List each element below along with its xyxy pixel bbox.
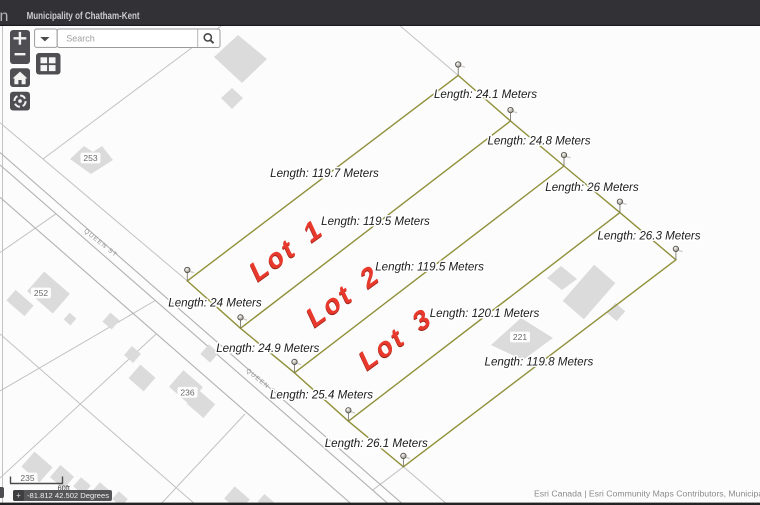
svg-text:+: + <box>16 491 21 500</box>
svg-text:Municipality of Chatham-Kent: Municipality of Chatham-Kent <box>27 10 140 22</box>
svg-text:Length: 26.3 Meters: Length: 26.3 Meters <box>597 229 700 242</box>
svg-text:Length: 120.1 Meters: Length: 120.1 Meters <box>430 307 540 320</box>
svg-text:Length: 25.4 Meters: Length: 25.4 Meters <box>270 389 373 402</box>
svg-text:221: 221 <box>513 332 527 342</box>
svg-text:236: 236 <box>180 387 194 397</box>
svg-text:Length: 24.8 Meters: Length: 24.8 Meters <box>487 135 590 148</box>
svg-text:Length: 24.9 Meters: Length: 24.9 Meters <box>216 342 319 355</box>
svg-text:Length: 119.5 Meters: Length: 119.5 Meters <box>375 261 484 274</box>
svg-text:Length: 26 Meters: Length: 26 Meters <box>545 181 639 194</box>
svg-text:253: 253 <box>83 153 97 163</box>
svg-text:Length: 24 Meters: Length: 24 Meters <box>168 297 262 310</box>
svg-text:Length: 119.7 Meters: Length: 119.7 Meters <box>270 167 379 180</box>
svg-text:Esri Canada | Esri Community M: Esri Canada | Esri Community Maps Contri… <box>534 489 760 499</box>
svg-text:Length: 24.1 Meters: Length: 24.1 Meters <box>434 88 537 101</box>
svg-text:Length: 119.5 Meters: Length: 119.5 Meters <box>321 215 430 228</box>
svg-text:Length: 119.8 Meters: Length: 119.8 Meters <box>485 356 594 369</box>
svg-text:-81.812 42.502 Degrees: -81.812 42.502 Degrees <box>27 491 109 500</box>
svg-text:n: n <box>0 8 8 25</box>
svg-text:235: 235 <box>20 473 34 483</box>
svg-text:Length: 26.1 Meters: Length: 26.1 Meters <box>325 437 428 450</box>
svg-text:Search: Search <box>66 34 95 44</box>
svg-text:252: 252 <box>34 288 48 298</box>
